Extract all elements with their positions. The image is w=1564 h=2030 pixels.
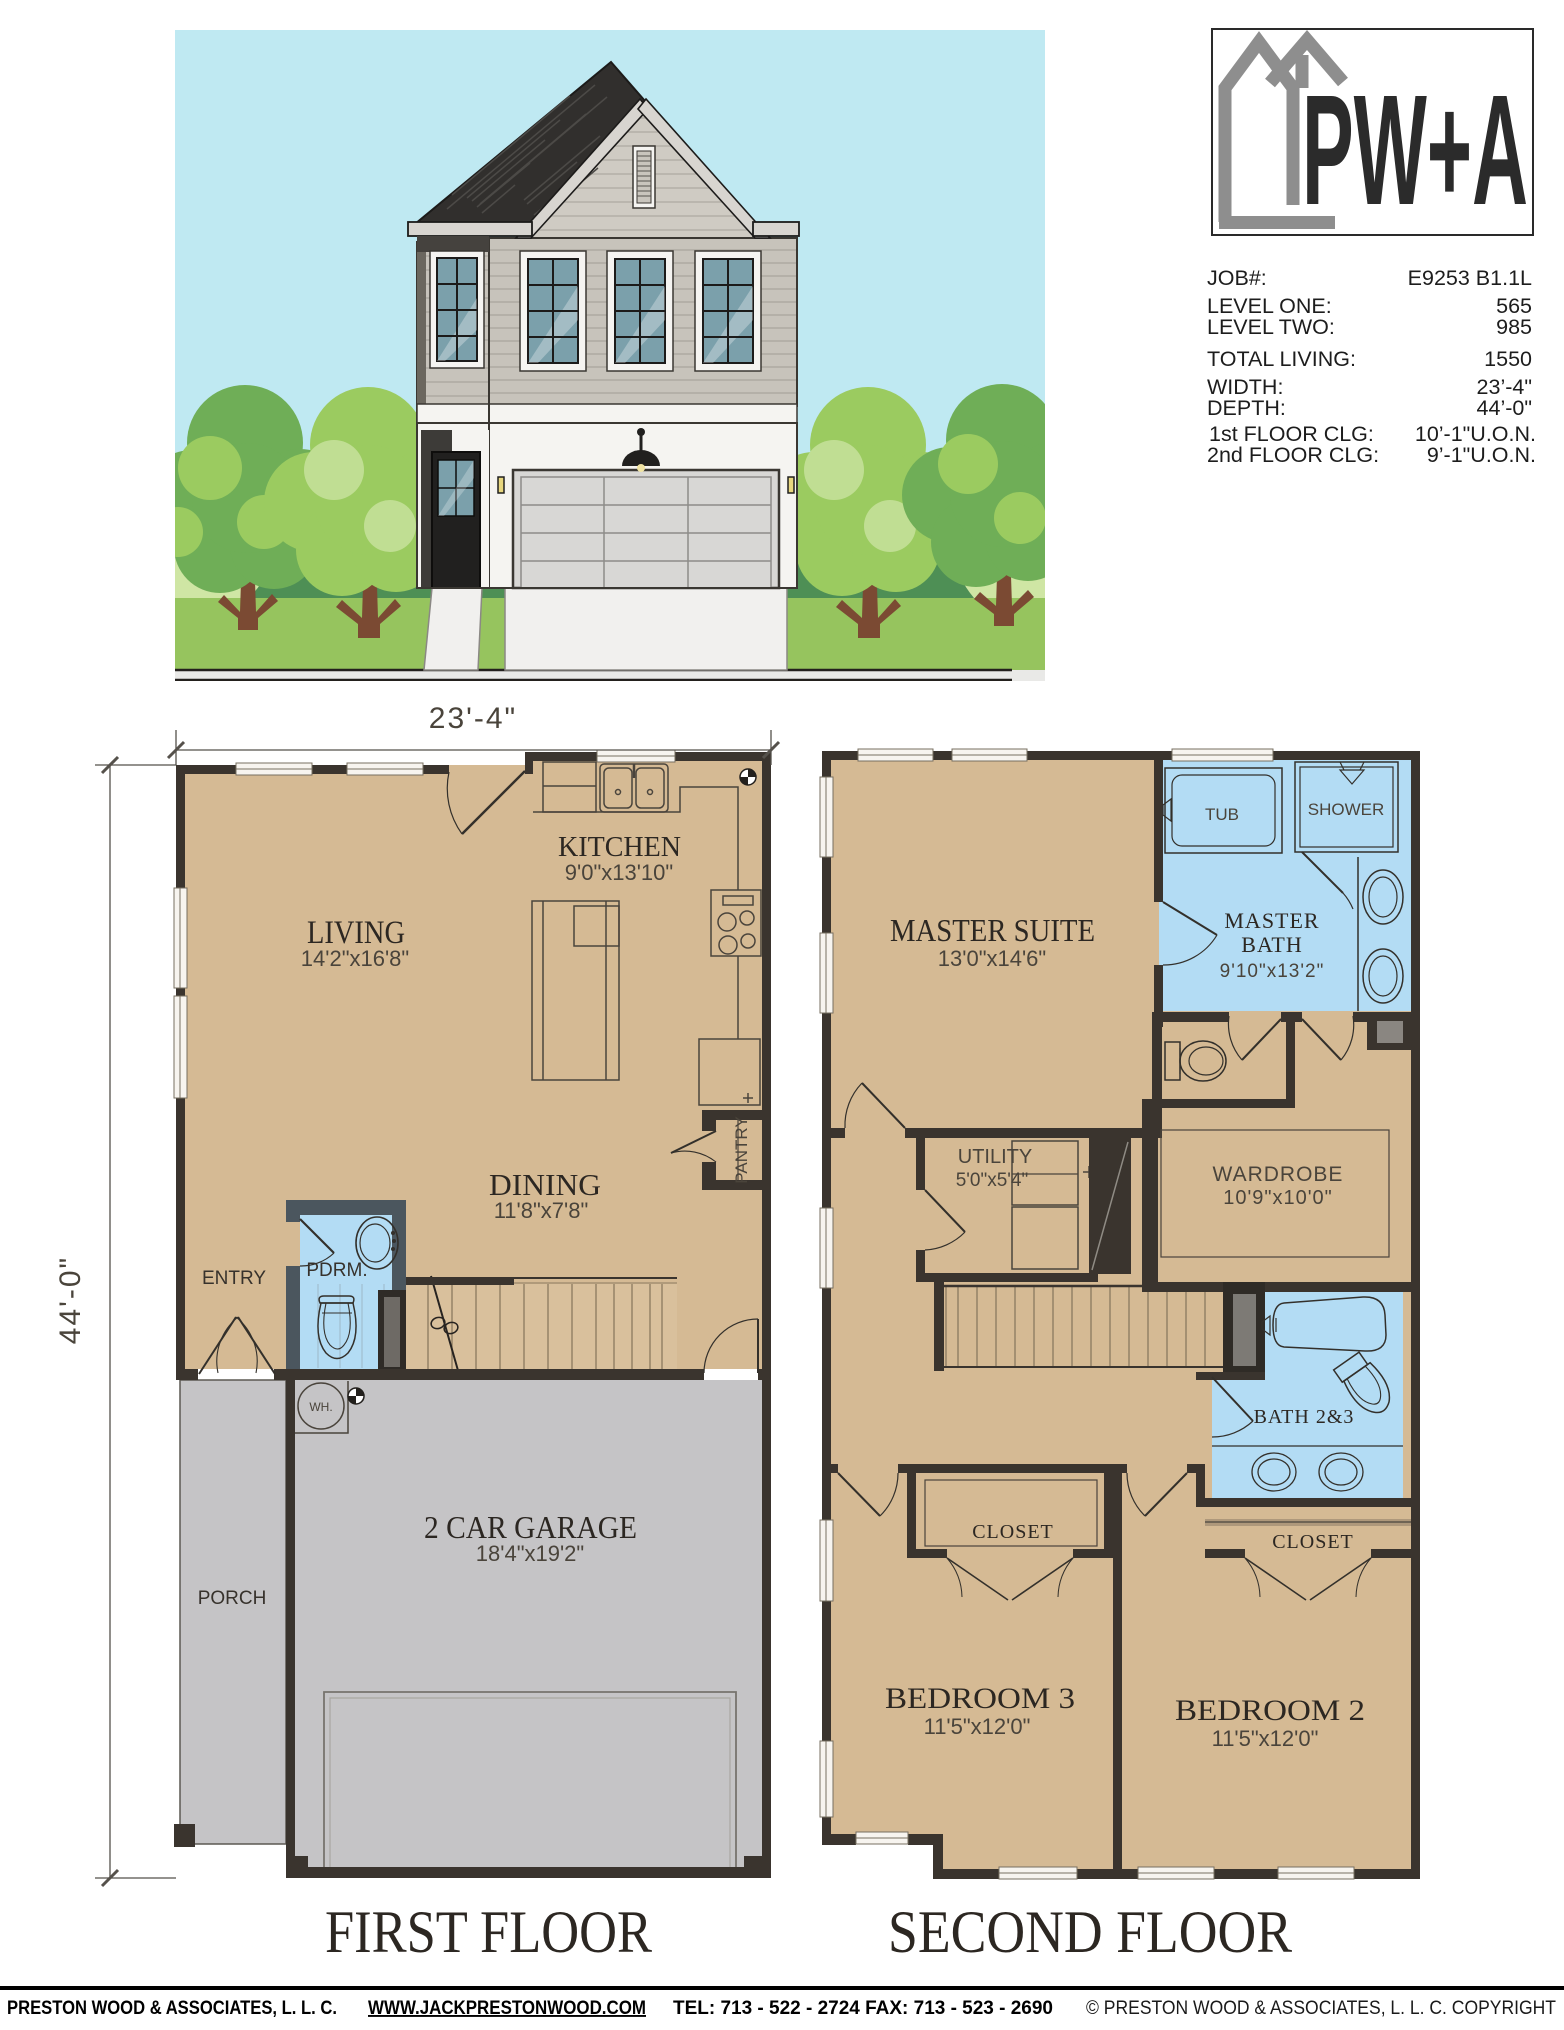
svg-text:PORCH: PORCH xyxy=(198,1588,267,1609)
svg-text:9'10"x13'2": 9'10"x13'2" xyxy=(1220,961,1325,982)
svg-text:BEDROOM 2: BEDROOM 2 xyxy=(1175,1694,1365,1727)
svg-text:PRESTON WOOD & ASSOCIATES, L.: PRESTON WOOD & ASSOCIATES, L. L. C. xyxy=(7,1998,337,2019)
svg-text:44'-0": 44'-0" xyxy=(54,1256,87,1344)
svg-text:2nd FLOOR CLG:: 2nd FLOOR CLG: xyxy=(1207,443,1379,467)
svg-text:PW+A: PW+A xyxy=(1302,63,1528,238)
svg-text:KITCHEN: KITCHEN xyxy=(558,832,681,863)
svg-text:TEL: 713 - 522 - 2724 FAX:: TEL: 713 - 522 - 2724 FAX: 713 - 523 - 2… xyxy=(673,1998,1053,2019)
svg-text:9'0"x13'10": 9'0"x13'10" xyxy=(565,860,673,885)
svg-text:E9253 B1.1L: E9253 B1.1L xyxy=(1408,266,1532,290)
svg-text:DEPTH:: DEPTH: xyxy=(1207,396,1286,420)
svg-text:UTILITY: UTILITY xyxy=(958,1146,1032,1168)
svg-text:10'9"x10'0": 10'9"x10'0" xyxy=(1223,1187,1333,1209)
svg-text:11'8"x7'8": 11'8"x7'8" xyxy=(494,1198,589,1223)
svg-text:11'5"x12'0": 11'5"x12'0" xyxy=(1212,1726,1319,1751)
svg-text:PDRM.: PDRM. xyxy=(306,1260,367,1281)
svg-text:WWW.JACKPRESTONWOOD.COM: WWW.JACKPRESTONWOOD.COM xyxy=(368,1998,646,2019)
svg-text:985: 985 xyxy=(1496,315,1532,339)
svg-text:SECOND FLOOR: SECOND FLOOR xyxy=(888,1899,1292,1965)
svg-text:14'2"x16'8": 14'2"x16'8" xyxy=(301,946,409,971)
svg-text:CLOSET: CLOSET xyxy=(1272,1531,1354,1553)
svg-text:PANTRY: PANTRY xyxy=(732,1116,751,1183)
svg-text:WARDROBE: WARDROBE xyxy=(1213,1163,1344,1186)
svg-text:CLOSET: CLOSET xyxy=(972,1521,1054,1543)
svg-text:2 CAR GARAGE: 2 CAR GARAGE xyxy=(424,1509,637,1545)
svg-text:1550: 1550 xyxy=(1484,347,1532,371)
svg-text:BATH: BATH xyxy=(1241,932,1302,957)
svg-text:FIRST FLOOR: FIRST FLOOR xyxy=(325,1899,652,1965)
svg-text:18'4"x19'2": 18'4"x19'2" xyxy=(476,1541,584,1566)
svg-text:ENTRY: ENTRY xyxy=(202,1268,266,1289)
svg-text:BEDROOM 3: BEDROOM 3 xyxy=(885,1682,1075,1715)
svg-text:MASTER: MASTER xyxy=(1224,908,1319,933)
svg-text:SHOWER: SHOWER xyxy=(1308,800,1385,819)
svg-text:9’-1"U.O.N.: 9’-1"U.O.N. xyxy=(1427,443,1536,467)
svg-text:13'0"x14'6": 13'0"x14'6" xyxy=(938,946,1046,971)
svg-text:DINING: DINING xyxy=(489,1167,601,1202)
svg-text:TOTAL LIVING:: TOTAL LIVING: xyxy=(1207,347,1356,371)
svg-text:WH.: WH. xyxy=(309,1400,332,1414)
svg-text:TUB: TUB xyxy=(1205,805,1239,824)
svg-text:23'-4": 23'-4" xyxy=(429,702,517,735)
svg-text:5'0"x5'4": 5'0"x5'4" xyxy=(956,1170,1029,1191)
svg-text:11'5"x12'0": 11'5"x12'0" xyxy=(924,1714,1031,1739)
svg-text:JOB#:: JOB#: xyxy=(1207,266,1267,290)
svg-text:MASTER SUITE: MASTER SUITE xyxy=(890,912,1095,948)
svg-text:LEVEL TWO:: LEVEL TWO: xyxy=(1207,315,1335,339)
svg-text:BATH 2&3: BATH 2&3 xyxy=(1254,1406,1355,1428)
svg-text:44’-0": 44’-0" xyxy=(1477,396,1532,420)
svg-text:© PRESTON WOOD & ASSOCIATES, L: © PRESTON WOOD & ASSOCIATES, L. L. C. CO… xyxy=(1086,1998,1556,2019)
